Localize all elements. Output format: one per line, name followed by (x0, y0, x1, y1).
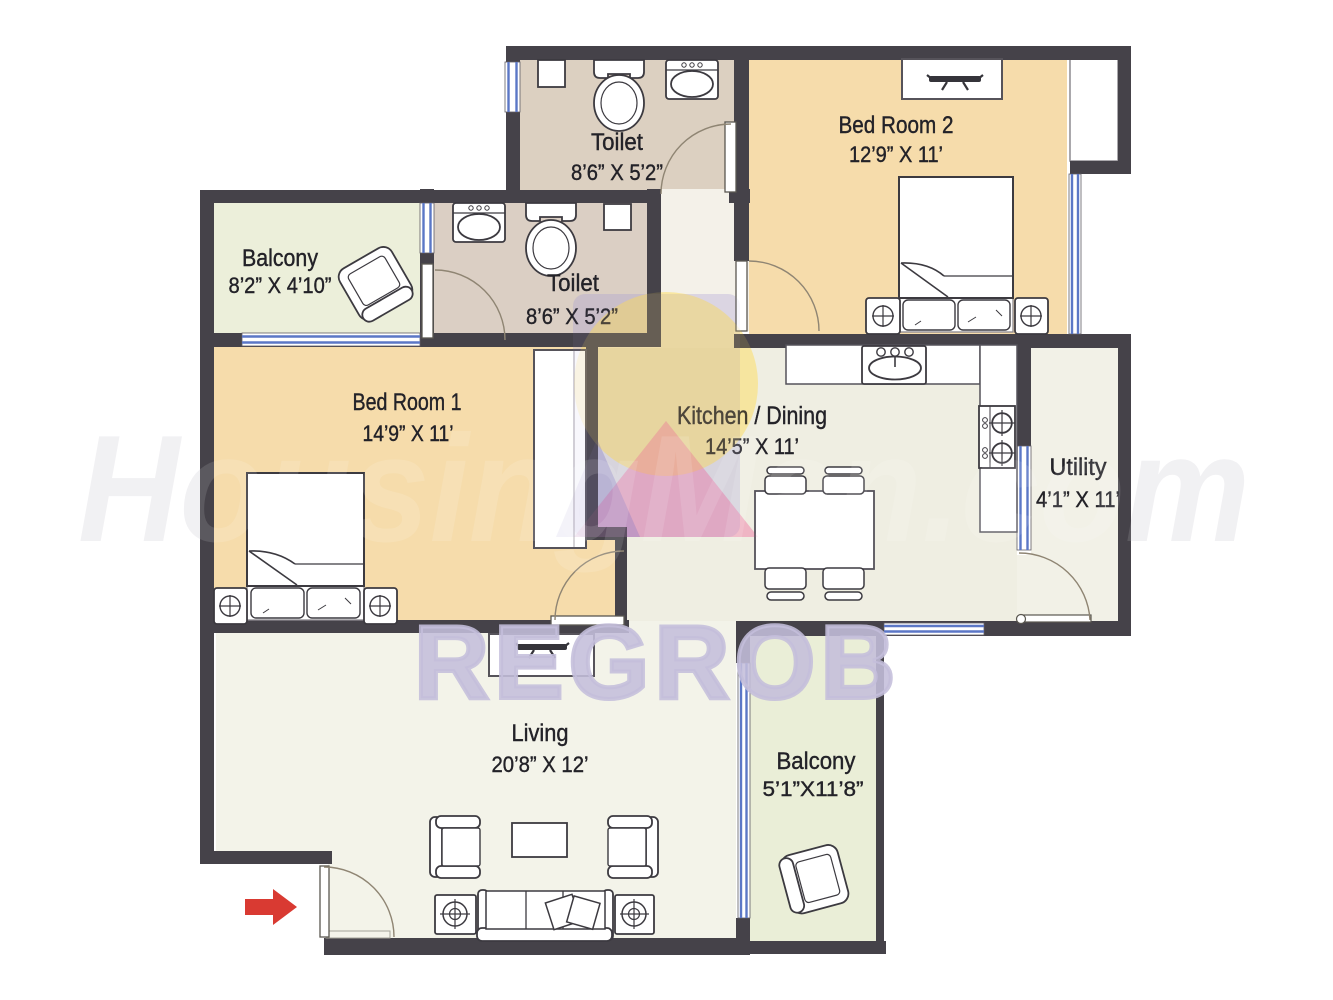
svg-text:Living: Living (512, 720, 569, 747)
svg-text:REGROB: REGROB (414, 605, 900, 721)
svg-text:HousingMan.com: HousingMan.com (78, 404, 1250, 574)
svg-text:Toilet: Toilet (547, 270, 599, 297)
svg-text:Toilet: Toilet (591, 129, 643, 156)
svg-text:Balcony: Balcony (777, 748, 856, 775)
svg-text:5’1”X11’8”: 5’1”X11’8” (763, 778, 864, 801)
svg-text:8’6” X 5’2”: 8’6” X 5’2” (571, 160, 663, 185)
svg-text:Balcony: Balcony (242, 245, 318, 272)
svg-text:Bed Room 2: Bed Room 2 (839, 112, 954, 139)
svg-text:8’2” X 4’10”: 8’2” X 4’10” (229, 273, 332, 298)
svg-text:12’9” X 11’: 12’9” X 11’ (849, 142, 943, 167)
svg-text:20’8” X 12’: 20’8” X 12’ (492, 752, 589, 777)
